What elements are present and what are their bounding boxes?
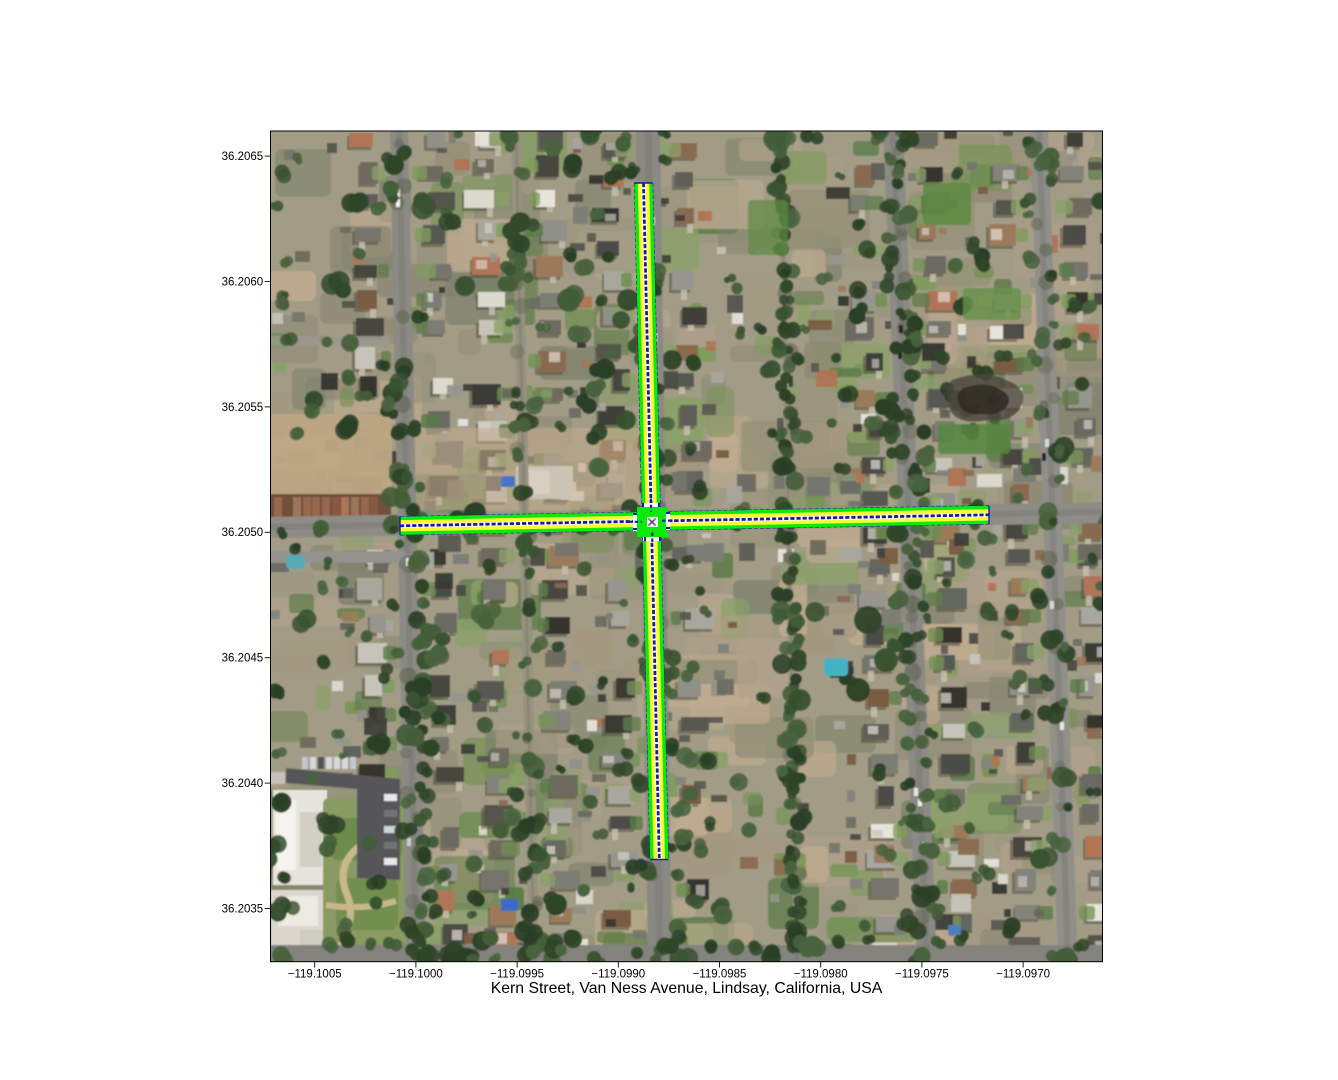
- svg-text:Kern Street, Van Ness Avenue,: Kern Street, Van Ness Avenue, Lindsay, C…: [491, 980, 883, 997]
- svg-text:−119.0995: −119.0995: [490, 969, 544, 981]
- svg-text:−119.0985: −119.0985: [693, 969, 747, 981]
- svg-text:−119.1005: −119.1005: [288, 969, 342, 981]
- svg-text:−119.0980: −119.0980: [794, 969, 848, 981]
- svg-text:36.2050: 36.2050: [222, 527, 264, 539]
- svg-text:36.2060: 36.2060: [222, 276, 264, 288]
- svg-text:36.2035: 36.2035: [222, 903, 264, 915]
- svg-text:−119.0990: −119.0990: [591, 969, 645, 981]
- svg-text:36.2065: 36.2065: [222, 151, 264, 163]
- svg-text:−119.0975: −119.0975: [895, 969, 949, 981]
- svg-text:36.2055: 36.2055: [222, 402, 264, 414]
- svg-text:−119.0970: −119.0970: [996, 969, 1050, 981]
- svg-text:−119.1000: −119.1000: [389, 969, 443, 981]
- svg-text:36.2040: 36.2040: [222, 778, 264, 790]
- svg-text:36.2045: 36.2045: [222, 653, 264, 665]
